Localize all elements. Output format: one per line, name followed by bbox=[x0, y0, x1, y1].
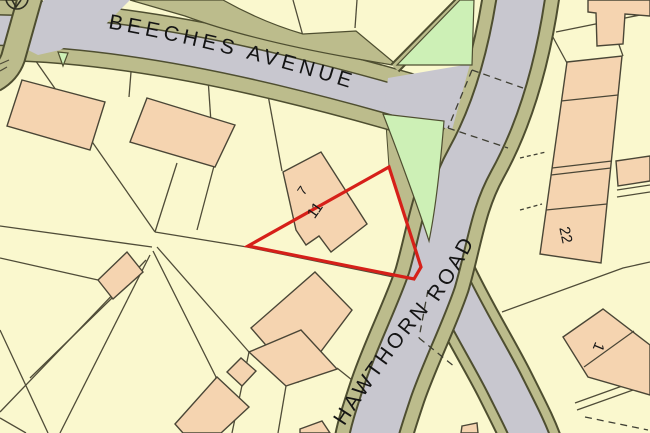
building bbox=[616, 156, 650, 186]
map-canvas: BEECHES AVENUE HAWTHORN ROAD 7 11 22 1 bbox=[0, 0, 650, 433]
location-plan-map: BEECHES AVENUE HAWTHORN ROAD 7 11 22 1 bbox=[0, 0, 650, 433]
plot-number-22: 22 bbox=[555, 225, 575, 245]
